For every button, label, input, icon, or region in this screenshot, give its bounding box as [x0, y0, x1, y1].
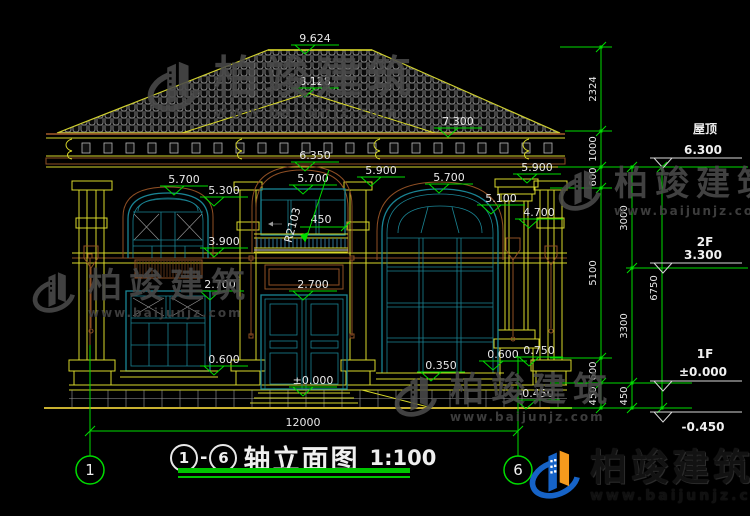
level-value: 2.700: [297, 278, 329, 291]
level-marker: 0.350: [417, 359, 465, 381]
story-level: -0.450: [650, 412, 742, 434]
level-value: 0.750: [523, 344, 555, 357]
story-level: 屋顶6.300: [650, 122, 742, 168]
level-value: 0.600: [208, 353, 240, 366]
chain-dim-value: 1000: [588, 136, 599, 161]
side-ramp: [362, 390, 432, 408]
axis-number: 1: [85, 461, 95, 479]
roof: [57, 50, 560, 133]
balcony-window-2f: [261, 189, 345, 235]
level-value: 5.700: [168, 173, 200, 186]
left-bay-window-2f: [123, 187, 213, 258]
chain-dim-value: 450: [588, 386, 599, 405]
axis-dash: -: [200, 447, 207, 468]
level-marker: 2.700: [196, 278, 244, 300]
level-marker: 0.750: [515, 344, 563, 366]
title-underline-thick: [178, 468, 410, 473]
chain-dim-value: 6750: [649, 275, 660, 300]
title-scale: 1:100: [369, 446, 436, 470]
chain-dim-value: 450: [619, 386, 630, 405]
level-value: 5.700: [433, 171, 465, 184]
dimension-chain: 30003300450: [619, 162, 637, 413]
story-level: 1F±0.000: [650, 347, 742, 391]
ornament-shield: [506, 238, 520, 260]
level-value: 5.700: [297, 172, 329, 185]
level-marker: 0.600: [479, 348, 527, 370]
level-value: 2.700: [204, 278, 236, 291]
story-elevation: -0.450: [682, 420, 725, 434]
chain-dim-value: 2324: [588, 76, 599, 101]
overall-width: 12000: [286, 416, 321, 429]
story-level: 2F3.300: [650, 235, 742, 273]
ornament-shield: [545, 246, 557, 265]
level-marker: 4.700: [515, 206, 563, 228]
level-marker: 3.900: [200, 235, 248, 257]
title-underline-thin: [178, 476, 410, 478]
dimension-chain: 232410006005100600450: [588, 42, 606, 413]
level-value: 9.624: [299, 32, 331, 45]
level-value: 4.700: [523, 206, 555, 219]
story-name: 2F: [697, 235, 714, 249]
level-marker: 5.700: [160, 173, 208, 195]
level-marker: 0.600: [200, 353, 248, 375]
right-bay-arched-window: [376, 182, 504, 379]
level-value: 5.900: [521, 161, 553, 174]
level-value: 0.600: [487, 348, 519, 361]
level-value: 5.300: [208, 184, 240, 197]
cad-elevation-screenshot: 9.624 8.128 7.300 6.350 5.900 5.900 5.70…: [0, 0, 750, 516]
level-value: ±0.000: [293, 374, 334, 387]
swing-arrow: [268, 222, 273, 227]
level-marker: 5.100: [477, 192, 525, 214]
railing-dim: 450: [300, 213, 350, 231]
story-level-symbols: 屋顶6.300 2F3.300 1F±0.000 -0.450: [650, 122, 742, 434]
level-value: 8.128: [299, 75, 331, 88]
mid-right-pilaster: [341, 182, 375, 385]
story-name: 1F: [697, 347, 714, 361]
chain-dim-value: 5100: [588, 260, 599, 285]
chain-dim-value: 600: [588, 167, 599, 186]
level-value: 3.900: [208, 235, 240, 248]
level-value: 5.900: [365, 164, 397, 177]
story-elevation: 3.300: [684, 248, 722, 262]
dimension-chain: 6750: [649, 162, 667, 413]
left-corner-pilasters: [69, 181, 115, 385]
level-value: 6.350: [299, 149, 331, 162]
level-value: 0.350: [425, 359, 457, 372]
brand-logo: 柏竣建筑 www.baijunjz.com: [526, 442, 750, 510]
brand-url: www.baijunjz.com: [590, 488, 750, 504]
axis-number: 6: [513, 461, 523, 479]
level-marker: -0.450: [512, 387, 560, 409]
chain-dim-value: 600: [588, 361, 599, 380]
brand-logo-icon: [526, 442, 584, 510]
brand-name: 柏竣建筑: [590, 449, 750, 486]
chain-dim-value: 3300: [619, 313, 630, 338]
dimension-chains: 232410006005100600450300033004506750: [588, 42, 667, 413]
level-value: 5.100: [485, 192, 517, 205]
story-name: 屋顶: [693, 122, 717, 136]
story-elevation: ±0.000: [679, 365, 727, 379]
level-value: -0.450: [518, 387, 553, 400]
level-marker: 5.300: [200, 184, 248, 206]
balcony-railing: [254, 234, 348, 252]
left-bay-window-1f: [120, 291, 218, 377]
chain-dim-value: 3000: [619, 205, 630, 230]
level-value: 7.300: [442, 115, 474, 128]
story-elevation: 6.300: [684, 143, 722, 157]
